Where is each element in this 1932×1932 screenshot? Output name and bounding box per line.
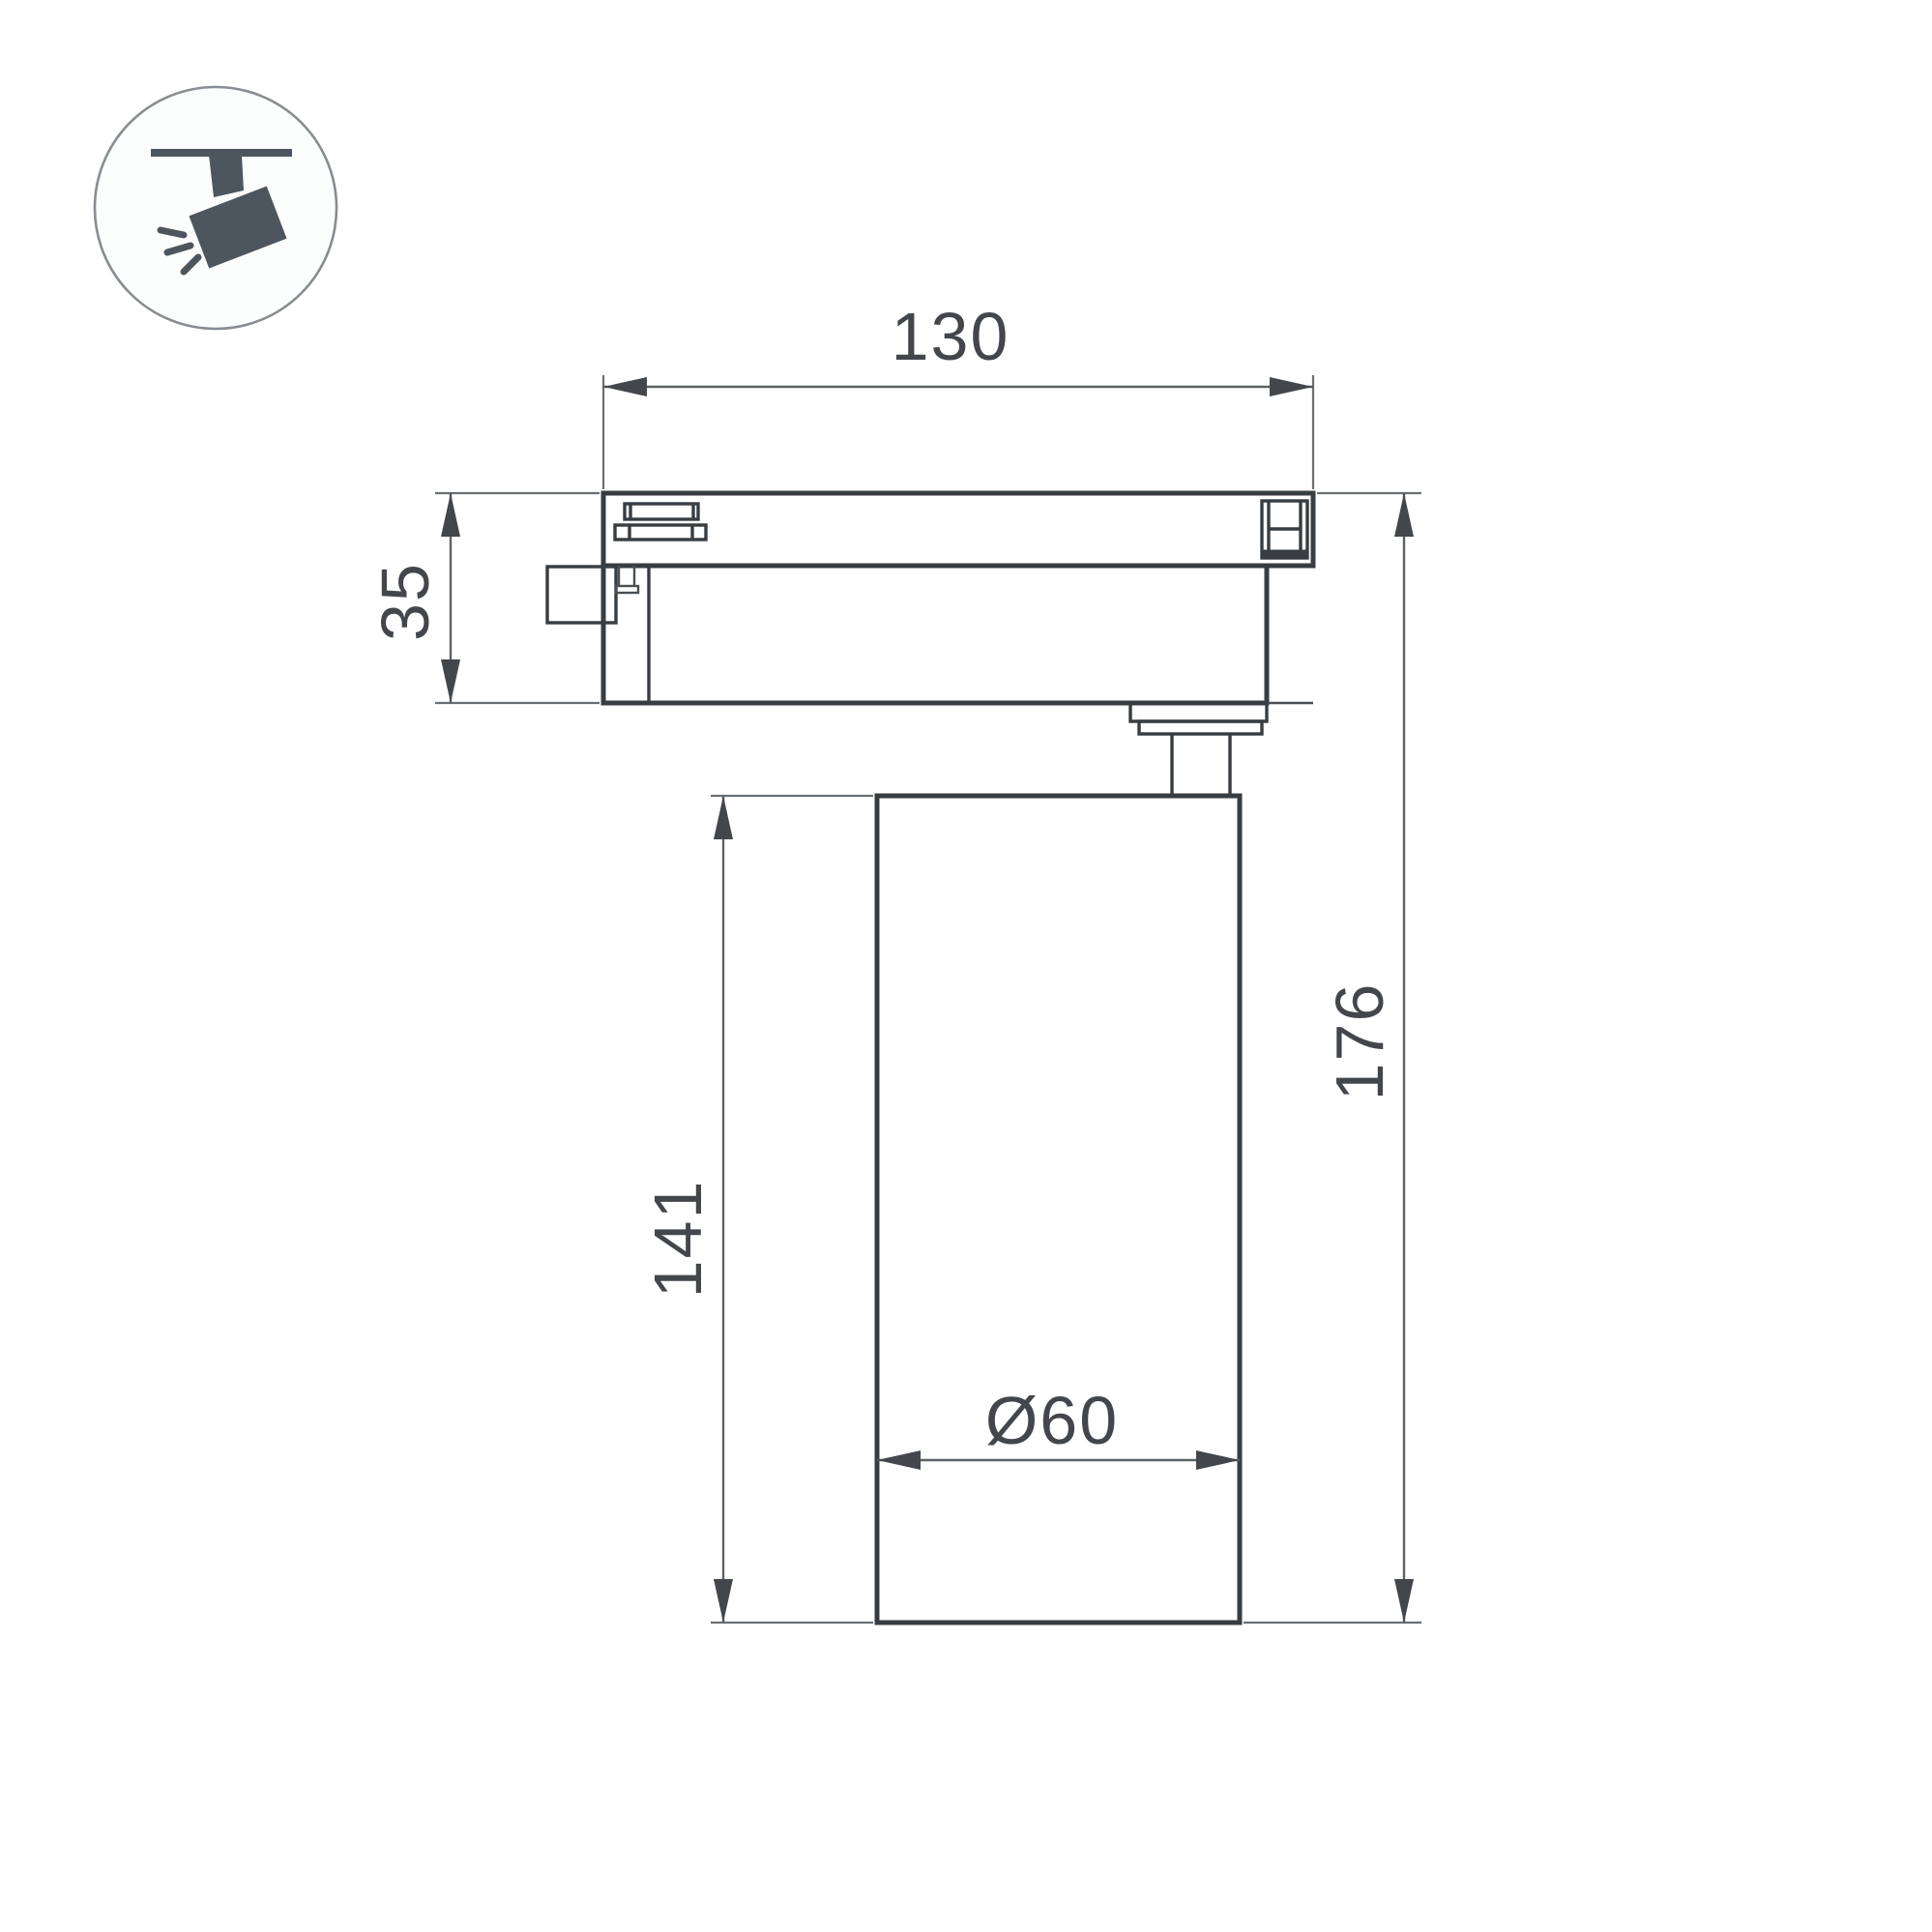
arrowhead-up xyxy=(1394,493,1414,537)
adapter-upper-strip xyxy=(603,493,1313,566)
arrowhead-down xyxy=(441,659,460,703)
dimension-body-diameter: Ø60 xyxy=(877,1383,1240,1470)
technical-drawing: 130 35 141 176 xyxy=(0,0,1932,1932)
dimension-label-track-width: 130 xyxy=(892,299,1010,374)
track-adapter-outline xyxy=(547,493,1313,703)
stem-flange-lower xyxy=(1139,721,1262,734)
dimension-label-body-diameter: Ø60 xyxy=(985,1383,1119,1458)
dimension-label-body-height: 141 xyxy=(640,1180,716,1299)
adapter-main-body xyxy=(603,566,1267,703)
arrowhead-up xyxy=(714,796,733,839)
icon-light-ray xyxy=(161,230,184,235)
dimension-total-height: 176 xyxy=(1244,493,1421,1623)
dimension-track-height: 35 xyxy=(367,493,600,703)
swivel-stem-outline xyxy=(1130,703,1267,796)
arrowhead-down xyxy=(714,1579,733,1623)
adapter-end-contact xyxy=(1262,501,1307,558)
drawing-page: 130 35 141 176 xyxy=(0,0,1932,1932)
dimension-label-track-height: 35 xyxy=(367,562,443,641)
adapter-hook-ledge xyxy=(616,586,638,593)
arrowhead-left xyxy=(603,377,647,396)
icon-stem xyxy=(209,155,244,197)
stem-flange-upper xyxy=(1130,703,1267,721)
arrowhead-right xyxy=(1196,1450,1240,1470)
arrowhead-left xyxy=(877,1450,921,1470)
arrowhead-right xyxy=(1270,377,1313,396)
lamp-body-outline xyxy=(877,796,1240,1623)
track-spotlight-icon xyxy=(95,87,337,329)
dimension-track-width: 130 xyxy=(603,299,1313,489)
arrowhead-up xyxy=(441,493,460,537)
dimension-body-height: 141 xyxy=(640,796,873,1623)
arrowhead-down xyxy=(1394,1579,1414,1623)
dimension-label-total-height: 176 xyxy=(1322,982,1397,1101)
adapter-contact-clips xyxy=(615,504,706,540)
